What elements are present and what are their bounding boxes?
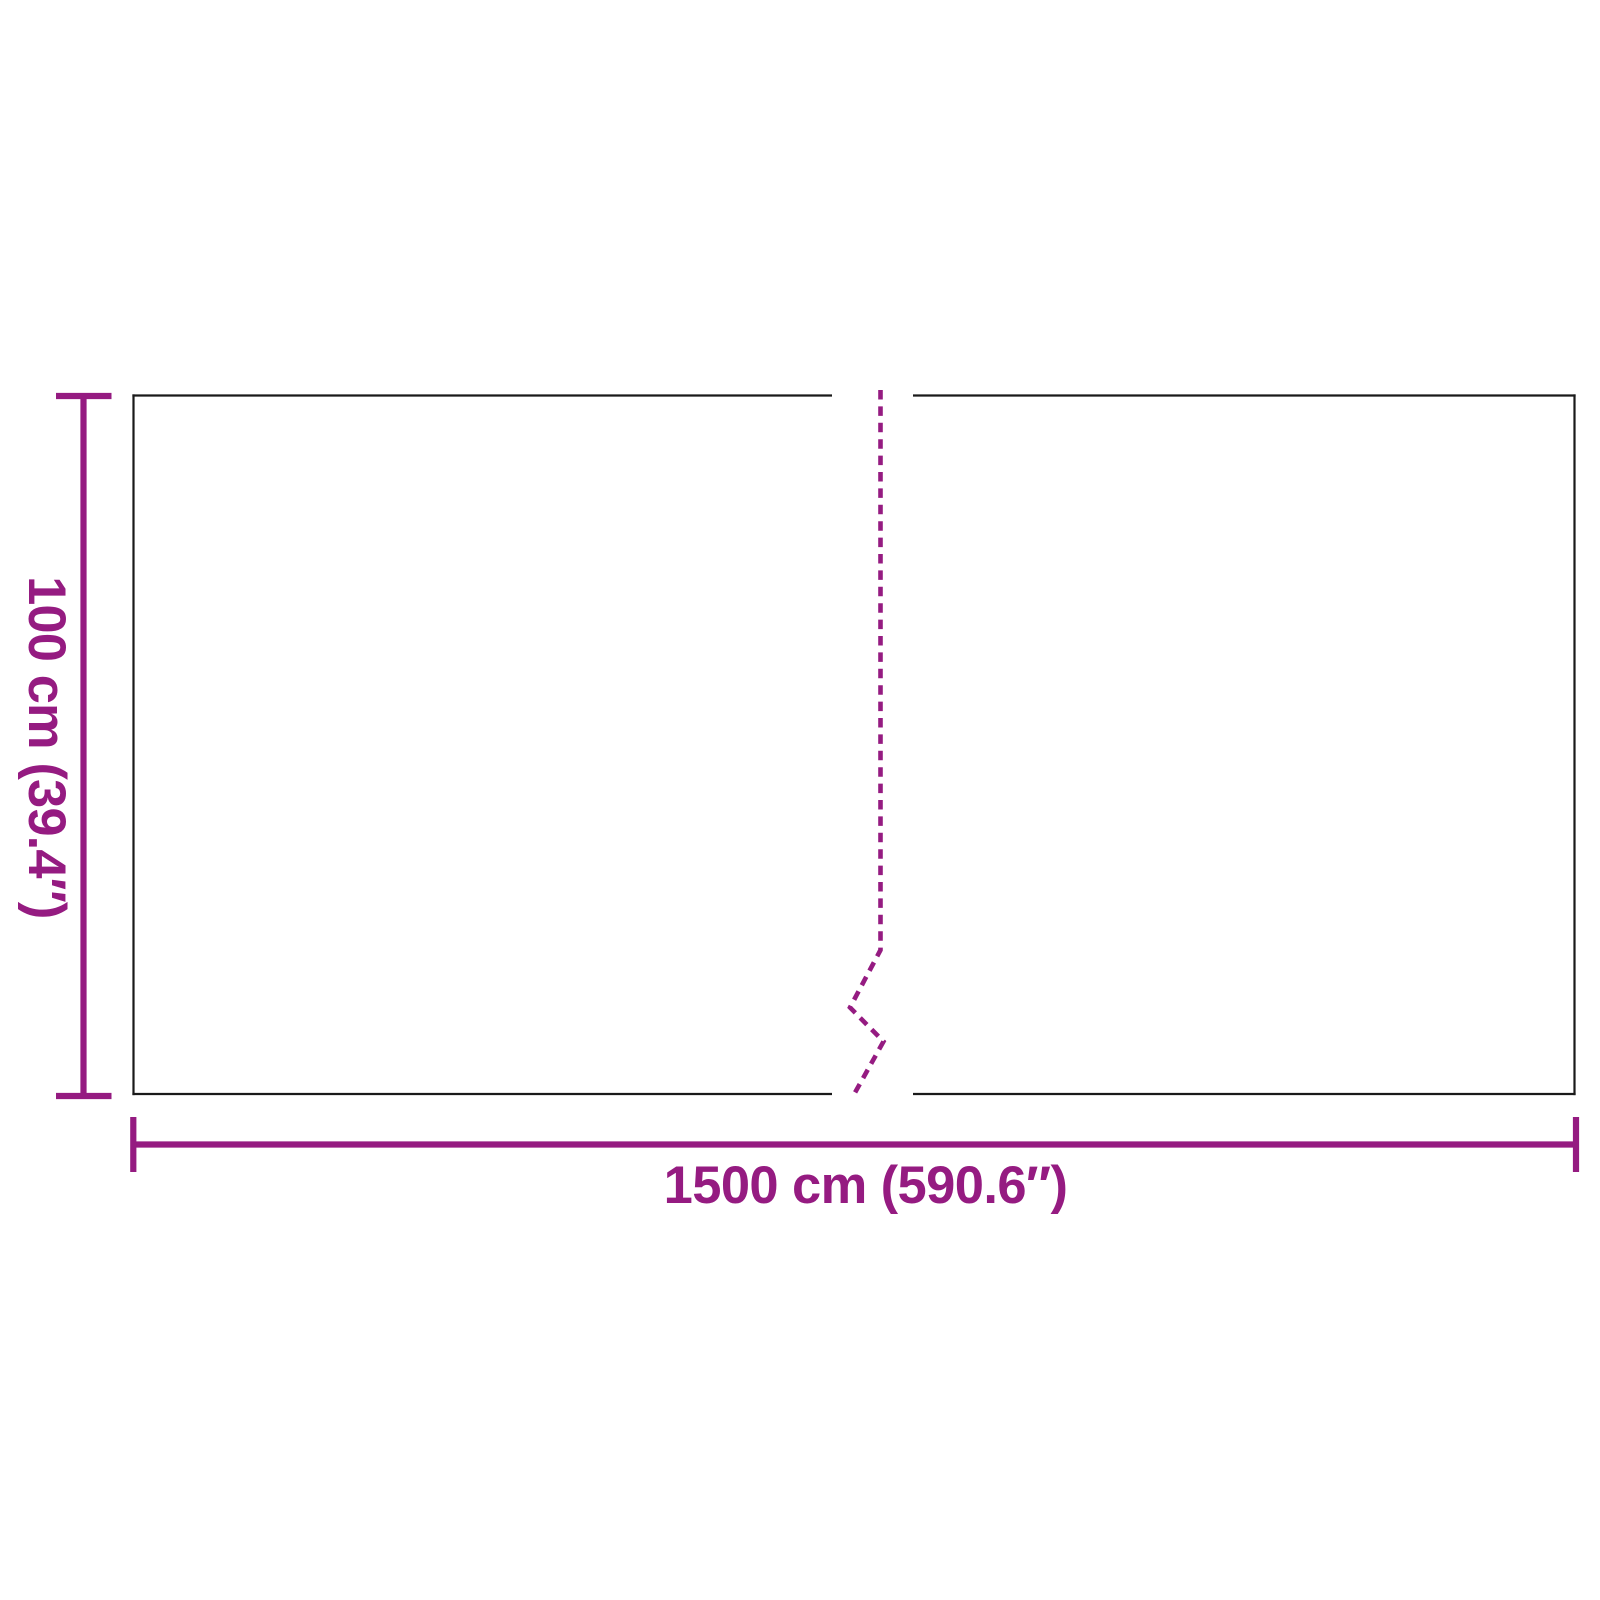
svg-text:1500 cm (590.6″): 1500 cm (590.6″)	[664, 1156, 1068, 1215]
svg-text:100 cm (39.4″): 100 cm (39.4″)	[17, 576, 76, 918]
